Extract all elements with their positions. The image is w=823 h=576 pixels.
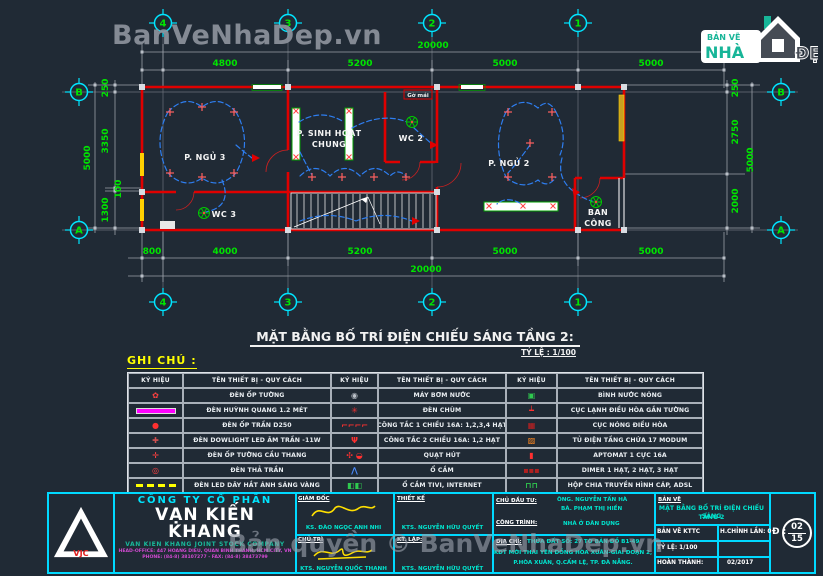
dim-right: 250 — [731, 79, 741, 98]
column-square — [434, 84, 440, 90]
dim-bottom: 800 — [143, 247, 162, 257]
binh-nuoc-nong-icon: ▣ — [506, 388, 557, 403]
company-logo: VJC — [52, 504, 110, 566]
dim-left-total: 5000 — [83, 145, 93, 170]
dim-bottom-total: 20000 — [410, 265, 441, 275]
drawing-title: MẶT BẰNG BỐ TRÍ ĐIỆN CHIẾU SÁNG TẦNG 2: — [250, 329, 580, 347]
column-square — [621, 84, 627, 90]
legend-label: ĐÈN ỐP TRẦN D250 — [183, 418, 331, 433]
column-square — [285, 84, 291, 90]
sig-designer: THIẾT KẾ KTS. NGUYỄN HỮU QUYẾT — [395, 495, 490, 532]
room-label: BAN — [588, 208, 608, 217]
dim-left: 250 — [101, 79, 111, 98]
quat-hut-icon: ✣ ◒ — [331, 448, 378, 463]
sig-role: THIẾT KẾ — [397, 496, 425, 502]
tag-label: Gờ mái — [407, 92, 429, 99]
legend-label: CÔNG TẮC 1 CHIỀU 16A: 1,2,3,4 HẠT — [378, 418, 506, 433]
room-label: P. NGỦ 2 — [488, 156, 530, 168]
column-square — [621, 227, 627, 233]
dim-bottom: 4000 — [212, 247, 237, 257]
dim-bottom: 5000 — [492, 247, 517, 257]
grid-bubble-label: B — [777, 88, 785, 99]
dim-tick — [726, 227, 729, 230]
grid-bubble-label: B — [75, 88, 83, 99]
legend-label: Ổ CẮM — [378, 463, 506, 478]
dim-tick — [94, 227, 97, 230]
client-label: CHỦ ĐẦU TƯ: — [496, 498, 537, 504]
room-label: P. NGỦ 3 — [184, 150, 226, 162]
company-logo-text: VJC — [73, 548, 88, 558]
work-label: CÔNG TRÌNH: — [496, 520, 537, 526]
dim-tick — [162, 257, 165, 260]
dim-tick — [431, 257, 434, 260]
sig-name: KTS. NGUYỄN QUỐC THANH — [296, 566, 391, 572]
legend-header-symbol: KÝ HIỆU — [331, 373, 378, 388]
den-huynh-quang-icon — [136, 408, 176, 414]
logo-line3: ĐẸP — [795, 44, 818, 64]
dim-bottom: 5200 — [347, 247, 372, 257]
balcony-railing — [619, 178, 624, 228]
dim-left: 1300 — [101, 197, 111, 222]
dim-tick — [577, 69, 580, 72]
column-square — [139, 227, 145, 233]
client-name-1: ÔNG. NGUYỄN TẤN HÀ — [557, 497, 627, 503]
den-downlight-icon: ✚ — [128, 433, 183, 448]
legend-label: ĐÈN CHÙM — [378, 403, 506, 418]
room-label: CÔNG — [584, 217, 612, 228]
dim-tick — [431, 69, 434, 72]
grid-bubble-label: 2 — [429, 19, 436, 30]
door-leaf — [619, 95, 624, 141]
room-label: WC 2 — [399, 134, 424, 143]
grid-bubble-label: 4 — [160, 298, 167, 309]
dim-bottom: 5000 — [638, 247, 663, 257]
legend-label: ĐÈN ỐP TƯỜNG CẦU THANG — [183, 448, 331, 463]
watermark-top: BanVeNhaDep.vn — [112, 20, 382, 51]
dim-tick — [577, 257, 580, 260]
logo-line1: BẢN VẼ — [707, 31, 740, 42]
dim-tick — [723, 257, 726, 260]
sig-name: KTS. NGUYỄN HỮU QUYẾT — [395, 566, 490, 572]
legend-label: BÌNH NƯỚC NÓNG — [557, 388, 703, 403]
grid-bubble-label: A — [75, 226, 83, 237]
dim-top: 5000 — [492, 59, 517, 69]
den-led-day-icon — [136, 484, 176, 487]
cuc-lanh-icon: ┷ — [506, 403, 557, 418]
dim-tick — [94, 84, 97, 87]
dim-top: 4800 — [212, 59, 237, 69]
dim-tick — [726, 91, 729, 94]
watermark-bottom: Bản quyền © BanVeNhaDep.vn — [228, 529, 663, 558]
legend-header-name: TÊN THIẾT BỊ - QUY CÁCH — [557, 373, 703, 388]
dim-tick — [141, 69, 144, 72]
hop-chia-icon: ⊓⊓ — [506, 478, 557, 493]
legend-header-symbol: KÝ HIỆU — [506, 373, 557, 388]
legend-label: APTOMAT 1 CỰC 16A — [557, 448, 703, 463]
legend-heading: GHI CHÚ : — [127, 354, 197, 369]
work-name: NHÀ Ở DÂN DỤNG — [563, 521, 620, 527]
dim-tick — [287, 69, 290, 72]
column-square — [575, 227, 581, 233]
grid-bubble-label: 3 — [285, 298, 292, 309]
exhaust-fan-icon — [595, 201, 597, 203]
legend-label: TỦ ĐIỆN TẦNG CHỨA 17 MODUM — [557, 433, 703, 448]
den-op-tuong-icon: ✿ — [128, 388, 183, 403]
legend-label: Ổ CẮM TIVI, INTERNET — [378, 478, 506, 493]
cuc-nong-icon: ▦ — [506, 418, 557, 433]
sheet-number: 02 15 — [782, 518, 812, 548]
legend-label: CÔNG TẮC 2 CHIỀU 16A: 1,2 HẠT — [378, 433, 506, 448]
dim-tick — [141, 275, 144, 278]
legend-header-symbol: KÝ HIỆU — [128, 373, 183, 388]
legend-label: HỘP CHIA TRUYỀN HÌNH CÁP, ADSL — [557, 478, 703, 493]
sheet-num: 02 — [788, 522, 806, 533]
legend-table: KÝ HIỆU TÊN THIẾT BỊ - QUY CÁCH KÝ HIỆU … — [127, 372, 704, 494]
room-label: WC 3 — [212, 210, 237, 219]
completed-label: HOÀN THÀNH: — [657, 560, 703, 566]
client-name-2: BÀ. PHẠM THỊ HIỀN — [561, 506, 622, 512]
dim-tick — [287, 257, 290, 260]
dim-top: 5000 — [638, 59, 663, 69]
dim-right: 2000 — [731, 188, 741, 213]
legend-header-name: TÊN THIẾT BỊ - QUY CÁCH — [183, 373, 331, 388]
column-square — [434, 189, 440, 195]
cong-tac-1-chieu-icon: ⌐⌐⌐⌐ — [331, 418, 378, 433]
address-line-3: P.HÒA XUÂN, Q.CẨM LỆ, TP. ĐÀ NẴNG. — [492, 560, 654, 566]
legend-label: ĐÈN DOWLIGHT LED ÂM TRẦN -11W — [183, 433, 331, 448]
dim-right-total: 5000 — [746, 147, 756, 172]
dim-left: 100 — [114, 180, 124, 199]
dim-top: 5200 — [347, 59, 372, 69]
legend-label: QUẠT HÚT — [378, 448, 506, 463]
brand-logo: BẢN VẼ NHÀ ĐẸP — [700, 8, 818, 70]
legend-label: CỤC LẠNH ĐIỀU HÒA GẮN TƯỜNG — [557, 403, 703, 418]
den-led-day-icon — [128, 478, 183, 493]
legend-label: ĐÈN HUỲNH QUANG 1.2 MÉT — [183, 403, 331, 418]
drawing-label: BẢN VẼ — [658, 497, 681, 503]
dimer-icon: ▪▪▪ — [506, 463, 557, 478]
column-square — [139, 84, 145, 90]
dim-tick — [726, 173, 729, 176]
drawing-scale: TỶ LỆ : 1/100 — [468, 348, 576, 357]
scale: TỶ LỆ: 1/100 — [657, 545, 697, 551]
den-huynh-quang-icon — [128, 403, 183, 418]
drawing-type: BẢN VẼ KTTC — [657, 529, 700, 535]
legend-label: ĐÈN THẢ TRẦN — [183, 463, 331, 478]
revision: H.CHỈNH LẦN: 0 — [720, 529, 771, 535]
den-chum-icon: ✳ — [331, 403, 378, 418]
entry-door — [160, 221, 175, 229]
o-cam-icon: ⋀ — [331, 463, 378, 478]
signature — [308, 500, 378, 524]
den-op-tran-icon: ● — [128, 418, 183, 433]
column-square — [434, 227, 440, 233]
den-op-tuong-cau-thang-icon: ✛ — [128, 448, 183, 463]
dim-tick — [726, 84, 729, 87]
exhaust-fan-icon — [411, 121, 413, 123]
completed-date: 02/2017 — [727, 560, 753, 566]
dim-tick — [114, 91, 117, 94]
dim-tick — [751, 84, 754, 87]
door-gaps — [176, 150, 600, 192]
legend-label: MÁY BƠM NƯỚC — [378, 388, 506, 403]
cad-sheet: BanVeNhaDep.vn BẢN VẼ NHÀ ĐẸP — [0, 0, 823, 576]
grid-bubble-label: 1 — [575, 298, 582, 309]
grid-bubble-label: 1 — [575, 19, 582, 30]
legend-label: DIMER 1 HẠT, 2 HẠT, 3 HẠT — [557, 463, 703, 478]
sheet-total: 15 — [791, 534, 803, 544]
grid-bubble-label: A — [777, 226, 785, 237]
aptomat-icon: ▮ — [506, 448, 557, 463]
room-label: P. SINH HOẠT — [296, 129, 361, 138]
house-window — [772, 39, 784, 52]
legend-label: CỤC NÓNG ĐIỀU HÒA — [557, 418, 703, 433]
column-square — [575, 84, 581, 90]
exhaust-fan-icon — [203, 212, 205, 214]
dim-top-total: 20000 — [417, 41, 448, 51]
dim-left: 3350 — [101, 128, 111, 153]
dim-right: 2750 — [731, 119, 741, 144]
room-label: CHUNG — [312, 140, 346, 149]
dim-tick — [114, 227, 117, 230]
column-square — [285, 227, 291, 233]
dim-tick — [751, 227, 754, 230]
legend-label: ĐÈN LED DÂY HẮT ÁNH SÁNG VÀNG — [183, 478, 331, 493]
grid-bubble-label: 2 — [429, 298, 436, 309]
legend-header-name: TÊN THIẾT BỊ - QUY CÁCH — [378, 373, 506, 388]
legend-label: ĐÈN ỐP TƯỜNG — [183, 388, 331, 403]
dim-tick — [162, 69, 165, 72]
den-tha-tran-icon: ◎ — [128, 463, 183, 478]
sig-director: GIÁM ĐỐC KS. ĐÀO NGỌC ANH NHI — [296, 495, 391, 532]
dim-tick — [114, 84, 117, 87]
cong-tac-2-chieu-icon: Ψ — [331, 433, 378, 448]
dim-tick — [723, 275, 726, 278]
logo-line2: NHÀ — [705, 43, 745, 62]
o-cam-tivi-icon: ◧◧ — [331, 478, 378, 493]
drawing-name-2: TẦNG 2 — [654, 514, 769, 522]
may-bom-nuoc-icon: ◉ — [331, 388, 378, 403]
tu-dien-icon: ▨ — [506, 433, 557, 448]
column-square — [139, 189, 145, 195]
